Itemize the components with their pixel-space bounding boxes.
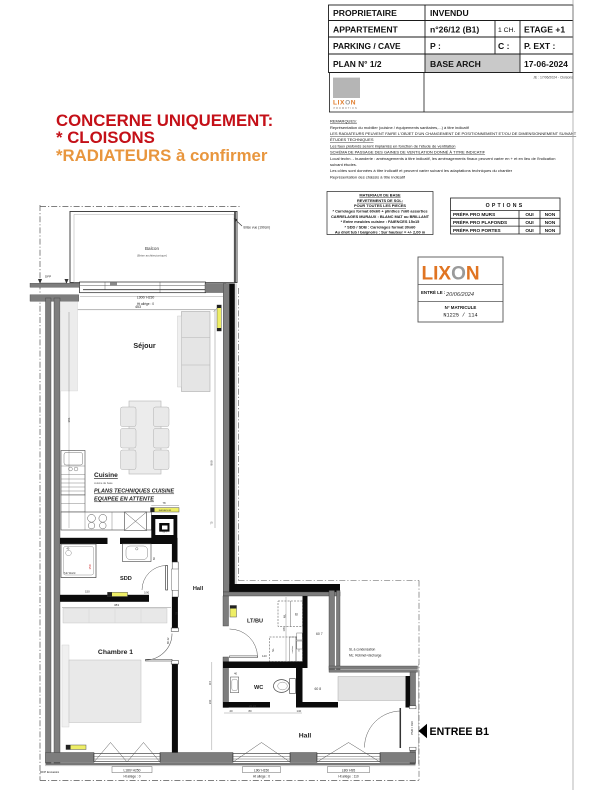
svg-text:Brise vue (190cm): Brise vue (190cm) — [244, 226, 271, 230]
svg-text:SL à condensation: SL à condensation — [349, 648, 376, 652]
svg-text:NON: NON — [545, 220, 556, 225]
svg-text:PLAN N° 1/2: PLAN N° 1/2 — [333, 59, 382, 69]
svg-text:383: 383 — [114, 603, 119, 607]
svg-text:PRÉPA PRO PLAFONDS: PRÉPA PRO PLAFONDS — [453, 218, 507, 225]
svg-text:80 22: 80 22 — [166, 637, 170, 644]
svg-text:Hall: Hall — [299, 733, 312, 740]
svg-text:DFP: DFP — [45, 275, 51, 279]
svg-text:63 t: 63 t — [163, 531, 167, 534]
svg-text:POUR TOUTES LES PIECES: POUR TOUTES LES PIECES — [354, 203, 406, 208]
svg-text:Les faux plafonds seront impla: Les faux plafonds seront implantés en fo… — [330, 143, 456, 148]
svg-text:40: 40 — [234, 672, 238, 676]
svg-text:SCHÉMA DE PASSAGE DES GAINES D: SCHÉMA DE PASSAGE DES GAINES DE VENTILAT… — [330, 150, 486, 155]
svg-text:* Entre meubles cuisine : FAIE: * Entre meubles cuisine : FAIENCES 15x15 — [341, 219, 421, 224]
svg-text:Local techn. - buanderie : amé: Local techn. - buanderie : aménagements … — [330, 156, 555, 161]
svg-text:LES RADIATEURS PEUVENT FAIRE L: LES RADIATEURS PEUVENT FAIRE L'OBJET D'U… — [330, 131, 577, 136]
svg-text:*RADIATEURS à confirmer: *RADIATEURS à confirmer — [56, 146, 268, 165]
svg-text:* CLOISONS: * CLOISONS — [56, 128, 155, 147]
svg-text:L180/ H250: L180/ H250 — [123, 768, 140, 772]
svg-text:Ht allège : 0: Ht allège : 0 — [253, 774, 270, 778]
svg-text:78: 78 — [163, 501, 167, 505]
svg-text:ENTREE B1: ENTREE B1 — [430, 726, 490, 738]
svg-text:LIXON: LIXON — [333, 100, 356, 107]
svg-text:C :: C : — [498, 41, 510, 51]
svg-text:RADIATEUR: RADIATEUR — [159, 509, 172, 512]
svg-text:105: 105 — [282, 627, 286, 632]
svg-text:suivant études.: suivant études. — [330, 162, 357, 167]
svg-text:SL: SL — [271, 648, 275, 652]
svg-text:Hall: Hall — [193, 586, 204, 592]
svg-text:22 22: 22 22 — [249, 704, 256, 708]
svg-text:LT/BU: LT/BU — [247, 619, 263, 625]
svg-text:L90/ H150: L90/ H150 — [254, 768, 269, 772]
svg-text:80: 80 — [249, 709, 253, 713]
svg-text:0,90: 0,90 — [144, 591, 150, 595]
svg-text:PROPRIETAIRE: PROPRIETAIRE — [333, 8, 397, 18]
svg-text:60 7: 60 7 — [316, 632, 323, 636]
svg-text:L80/ H95: L80/ H95 — [342, 768, 356, 772]
svg-text:Tub World: Tub World — [64, 571, 76, 575]
svg-text:Cuisine: Cuisine — [94, 472, 118, 479]
svg-text:SDD: SDD — [120, 576, 132, 582]
svg-text:869: 869 — [210, 460, 214, 465]
svg-text:PM0 / 030: PM0 / 030 — [410, 721, 414, 735]
svg-text:PROMOTION: PROMOTION — [334, 106, 358, 110]
svg-text:P. EXT :: P. EXT : — [524, 41, 555, 51]
svg-text:* SDD / SDB : Carrelages forma: * SDD / SDB : Carrelages format 30x60 — [345, 224, 416, 229]
svg-text:P :: P : — [430, 41, 441, 51]
svg-text:N1225 / 114: N1225 / 114 — [443, 313, 477, 319]
svg-text:Chambre 1: Chambre 1 — [98, 649, 133, 656]
svg-text:OPTIONS: OPTIONS — [486, 203, 525, 209]
svg-text:PRÉPA PRO MURS: PRÉPA PRO MURS — [453, 210, 495, 217]
svg-text:453: 453 — [135, 305, 141, 309]
svg-text:Balcon: Balcon — [145, 246, 159, 251]
svg-text:n°26/12 (B1): n°26/12 (B1) — [430, 25, 479, 35]
svg-text:N° MATRICULE: N° MATRICULE — [445, 305, 477, 310]
svg-text:Ht allège : 0: Ht allège : 0 — [123, 774, 140, 778]
svg-text:PRÉPA PRO PORTES: PRÉPA PRO PORTES — [453, 226, 501, 233]
svg-text:Séjour: Séjour — [133, 341, 156, 350]
svg-text:Au droit tub / baignoire : Sur: Au droit tub / baignoire : Sur hauteur =… — [335, 230, 426, 235]
svg-text:20: 20 — [230, 709, 234, 713]
svg-text:OUI: OUI — [525, 228, 533, 233]
svg-text:Représentation du mobilier (cu: Représentation du mobilier (cuisine / éq… — [330, 125, 470, 130]
svg-text:Les côtes sont données à titre: Les côtes sont données à titre indicatif… — [330, 168, 513, 173]
svg-text:230: 230 — [208, 699, 212, 704]
svg-text:B: B — [295, 612, 298, 617]
svg-text:OUI: OUI — [525, 212, 533, 217]
svg-text:cuisine de base: cuisine de base — [94, 481, 113, 485]
svg-text:L300/ H230: L300/ H230 — [137, 296, 155, 300]
svg-text:APPARTEMENT: APPARTEMENT — [333, 25, 399, 35]
svg-text:1 CH.: 1 CH. — [498, 27, 515, 34]
svg-text:NON: NON — [545, 212, 556, 217]
svg-text:PARKING / CAVE: PARKING / CAVE — [333, 41, 401, 51]
svg-text:* Carrelages format 60x60 + pl: * Carrelages format 60x60 + plinthes 7x6… — [332, 209, 427, 214]
svg-text:INVENDU: INVENDU — [430, 8, 469, 18]
svg-text:JE : 17/06/2024 - Cloisons: JE : 17/06/2024 - Cloisons — [533, 76, 573, 80]
svg-text:ETAGE +1: ETAGE +1 — [524, 25, 565, 35]
svg-text:60 8: 60 8 — [315, 687, 322, 691]
svg-text:ML: Robinet+décharge: ML: Robinet+décharge — [349, 654, 382, 658]
svg-text:Ht allège : 110: Ht allège : 110 — [338, 774, 359, 778]
svg-text:OUI: OUI — [525, 220, 533, 225]
svg-text:machine: machine — [292, 645, 294, 653]
svg-text:MATERIAUX DE BASE: MATERIAUX DE BASE — [359, 193, 401, 198]
svg-text:ÉTUDES TECHNIQUES: ÉTUDES TECHNIQUES — [330, 137, 374, 142]
svg-text:REMARQUES:: REMARQUES: — [330, 119, 357, 124]
svg-text:EQUIPEE EN ATTENTE: EQUIPEE EN ATTENTE — [94, 497, 154, 503]
svg-text:CARRELAGES MURAUX : BLANC MAT: CARRELAGES MURAUX : BLANC MAT ou BRILLAN… — [331, 214, 430, 219]
svg-text:Représentation des châssis à t: Représentation des châssis à titre indic… — [330, 174, 406, 179]
svg-text:PLANS TECHNIQUES CUISINE: PLANS TECHNIQUES CUISINE — [94, 489, 174, 495]
svg-text:LIXON: LIXON — [422, 264, 480, 285]
svg-text:REVETEMENTS DE SOL:: REVETEMENTS DE SOL: — [357, 198, 403, 203]
svg-text:115: 115 — [208, 680, 212, 685]
svg-text:ENTRÉ LE :: ENTRÉ LE : — [421, 290, 446, 295]
svg-text:NON: NON — [545, 228, 556, 233]
svg-text:150: 150 — [85, 590, 90, 594]
svg-text:(Brise architectonique): (Brise architectonique) — [137, 254, 167, 258]
svg-text:150: 150 — [88, 564, 92, 569]
svg-text:BASE ARCH: BASE ARCH — [430, 59, 481, 69]
svg-text:20/06/2024: 20/06/2024 — [445, 292, 474, 298]
svg-text:17-06-2024: 17-06-2024 — [524, 59, 568, 69]
svg-text:WC: WC — [254, 685, 263, 691]
svg-text:140: 140 — [262, 654, 267, 658]
svg-text:140: 140 — [297, 709, 302, 713]
svg-text:DFP Encastré: DFP Encastré — [40, 770, 59, 774]
